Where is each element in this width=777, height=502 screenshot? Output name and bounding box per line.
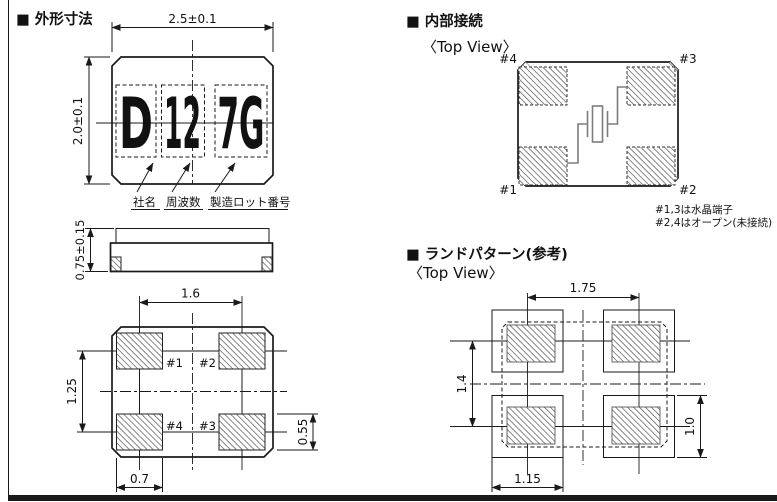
dim-land-pitch-y: 1.4 — [455, 341, 473, 427]
internal-pad-2-label: #2 — [679, 183, 697, 197]
dim-pad-pitch-y: 1.25 — [65, 351, 83, 432]
dim-package-height: 2.0±0.1 — [71, 57, 110, 184]
chip-pad-top-left — [507, 325, 555, 362]
outline-section-title: ■ 外形寸法 — [16, 10, 93, 28]
legend-company-label: 社名 — [133, 195, 156, 209]
land-section-title: ■ ランドパターン(参考) — [406, 245, 568, 263]
outline-side-view: 0.75±0.15 — [73, 220, 273, 281]
crystal-symbol — [567, 87, 627, 163]
bottom-pad-2 — [219, 333, 265, 369]
drawing-canvas: ■ 外形寸法 D 12 7G 2.5±0.1 — [0, 0, 777, 502]
internal-pad-3-label: #3 — [679, 52, 697, 66]
datasheet-drawing-page: ■ 外形寸法 D 12 7G 2.5±0.1 — [0, 0, 777, 502]
internal-section-title: ■ 内部接続 — [406, 12, 483, 30]
package-body-side-view — [111, 243, 273, 272]
bottom-pad-3-label: #3 — [199, 419, 216, 433]
dim-package-width-label: 2.5±0.1 — [168, 12, 216, 26]
dim-land-pitch-x-label: 1.75 — [570, 281, 597, 295]
package-lid-side-view — [116, 229, 269, 244]
dim-land-height-label: 1.0 — [683, 417, 697, 436]
dim-pad-pitch-y-label: 1.25 — [65, 378, 79, 405]
internal-pad-3 — [627, 67, 675, 105]
side-terminal-left — [111, 257, 121, 271]
internal-pad-1 — [519, 147, 567, 185]
dim-thickness-label: 0.75±0.15 — [73, 220, 87, 281]
internal-section: ■ 内部接続 〈Top View〉 #4 #3 #1 #2 #1,3は水晶端子 … — [406, 12, 772, 229]
internal-pad-4 — [519, 67, 567, 105]
dim-thickness: 0.75±0.15 — [73, 220, 114, 281]
dim-land-pitch-y-label: 1.4 — [455, 374, 469, 393]
outline-top-view: D 12 7G 2.5±0.1 2.0±0.1 社 — [71, 12, 291, 210]
legend-frequency-label: 周波数 — [166, 195, 201, 209]
internal-pad-2 — [627, 147, 675, 185]
bottom-pad-2-label: #2 — [199, 356, 216, 370]
land-top-view-label: 〈Top View〉 — [408, 264, 504, 282]
marking-frequency-chars: 12 — [164, 83, 201, 165]
internal-note-line-2: #2,4はオープン(未接続) — [655, 216, 772, 229]
outline-bottom-view: #1 #2 #4 #3 1.6 1.25 0.7 0.5 — [65, 287, 318, 493]
marking-lot-chars: 7G — [218, 83, 265, 165]
chip-pad-bottom-right — [612, 407, 660, 444]
outline-section: ■ 外形寸法 D 12 7G 2.5±0.1 — [16, 10, 318, 492]
marking-company-char: D — [119, 83, 153, 165]
dim-pad-pitch-x-label: 1.6 — [181, 287, 200, 301]
bottom-pad-4-label: #4 — [166, 419, 183, 433]
bottom-pad-1-label: #1 — [166, 356, 183, 370]
legend-lot-label: 製造ロット番号 — [210, 195, 291, 209]
marking-leaders: 社名 周波数 製造ロット番号 — [131, 163, 291, 210]
internal-pad-1-label: #1 — [499, 183, 517, 197]
dim-pad-height-label: 0.55 — [296, 419, 310, 446]
side-terminal-right — [262, 257, 272, 271]
chip-pad-bottom-left — [507, 407, 555, 444]
land-section: ■ ランドパターン(参考) 〈Top View〉 1.75 1.4 — [406, 245, 707, 492]
dim-package-height-label: 2.0±0.1 — [71, 97, 85, 145]
chip-pad-top-right — [612, 325, 660, 362]
internal-note-line-1: #1,3は水晶端子 — [655, 203, 733, 216]
bottom-pad-1 — [117, 333, 163, 369]
page-bottom-bar — [8, 495, 777, 501]
dim-pad-width-label: 0.7 — [130, 472, 149, 486]
bottom-pad-3 — [219, 414, 265, 450]
dim-pad-pitch-x: 1.6 — [140, 287, 243, 303]
bottom-pad-4 — [117, 414, 163, 450]
dim-land-pitch-x: 1.75 — [528, 281, 640, 298]
dim-land-width-label: 1.15 — [514, 472, 541, 486]
internal-pad-4-label: #4 — [499, 52, 517, 66]
